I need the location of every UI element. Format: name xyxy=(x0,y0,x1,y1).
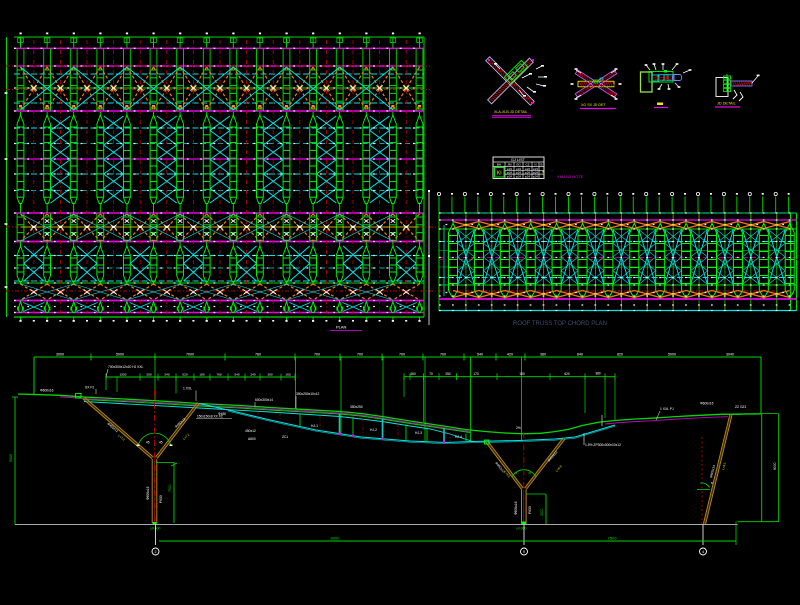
svg-text:600x300x14: 600x300x14 xyxy=(255,398,273,402)
svg-text:300: 300 xyxy=(267,373,272,377)
svg-text:φ24: φ24 xyxy=(533,175,538,179)
svg-text:9000: 9000 xyxy=(9,454,13,462)
svg-text:260: 260 xyxy=(410,372,416,376)
svg-text:2: 2 xyxy=(155,550,157,554)
svg-text:380: 380 xyxy=(595,372,601,376)
svg-text:XLA-XLB JD DETAIL: XLA-XLB JD DETAIL xyxy=(494,110,528,114)
svg-text:760: 760 xyxy=(255,353,261,357)
svg-text:540: 540 xyxy=(234,373,239,377)
svg-text:Φ600x16: Φ600x16 xyxy=(40,389,54,393)
svg-text:ZC1: ZC1 xyxy=(282,435,288,439)
svg-text:JD DETAIL: JD DETAIL xyxy=(717,102,736,106)
svg-text:3500: 3500 xyxy=(540,508,544,516)
svg-text:700: 700 xyxy=(399,353,405,357)
svg-text:760: 760 xyxy=(216,373,221,377)
svg-text:540: 540 xyxy=(477,353,483,357)
svg-text:YMJ BZ NOTE: YMJ BZ NOTE xyxy=(557,174,584,179)
svg-text:45: 45 xyxy=(146,441,150,445)
svg-text:45: 45 xyxy=(514,471,518,475)
svg-text:4: 4 xyxy=(702,550,704,554)
svg-text:45: 45 xyxy=(528,471,532,475)
svg-text:70: 70 xyxy=(429,372,433,376)
svg-text:HJ-3: HJ-3 xyxy=(415,431,422,435)
svg-text:±0.000: ±0.000 xyxy=(516,527,526,531)
svg-text:620: 620 xyxy=(182,373,187,377)
svg-text:φ24: φ24 xyxy=(516,175,521,179)
svg-text:1 XXL PJ: 1 XXL PJ xyxy=(660,407,674,411)
svg-text:700: 700 xyxy=(314,353,320,357)
svg-text:SX PJ: SX PJ xyxy=(85,386,95,390)
svg-text:420: 420 xyxy=(507,353,513,357)
svg-text:250: 250 xyxy=(445,372,451,376)
svg-text:3000: 3000 xyxy=(56,353,64,357)
svg-text:Φ600x16: Φ600x16 xyxy=(700,402,714,406)
svg-text:ZZ GZ1: ZZ GZ1 xyxy=(735,405,747,409)
svg-text:820: 820 xyxy=(617,353,623,357)
svg-text:350x250x10x12: 350x250x10x12 xyxy=(296,392,319,396)
svg-text:HJ-4: HJ-4 xyxy=(455,435,462,439)
svg-text:150: 150 xyxy=(519,372,525,376)
svg-text:φ24: φ24 xyxy=(507,175,512,179)
svg-text:640: 640 xyxy=(577,353,583,357)
svg-text:350x250: 350x250 xyxy=(350,405,363,409)
svg-text:1 XXL: 1 XXL xyxy=(183,387,192,391)
svg-text:7500: 7500 xyxy=(608,536,618,541)
svg-text:3040: 3040 xyxy=(726,353,734,357)
svg-text:180: 180 xyxy=(199,373,204,377)
svg-text:HJ-2: HJ-2 xyxy=(370,428,377,432)
svg-text:BH: BH xyxy=(497,163,501,167)
svg-text:1500: 1500 xyxy=(120,373,127,377)
svg-text:7500: 7500 xyxy=(168,484,172,492)
svg-text:8000: 8000 xyxy=(331,536,341,541)
svg-text:200: 200 xyxy=(146,373,151,377)
svg-text:2%: 2% xyxy=(516,426,521,430)
svg-text:620: 620 xyxy=(564,372,570,376)
svg-text:φ24: φ24 xyxy=(525,175,530,179)
svg-text:HJ-1: HJ-1 xyxy=(311,424,318,428)
svg-text:9: 9 xyxy=(523,550,525,554)
svg-text:GJ LIST: GJ LIST xyxy=(511,158,526,162)
svg-text:Φ600x16: Φ600x16 xyxy=(146,486,150,500)
svg-text:XG SX JD DET: XG SX JD DET xyxy=(581,103,606,107)
svg-text:170: 170 xyxy=(473,372,479,376)
svg-text:B: B xyxy=(540,163,542,167)
svg-text:45: 45 xyxy=(159,441,163,445)
svg-text:240: 240 xyxy=(250,373,255,377)
svg-text:Φ600x16: Φ600x16 xyxy=(514,501,518,515)
svg-text:A600: A600 xyxy=(248,437,256,441)
svg-text:1.5% ZP300x300x10x12: 1.5% ZP300x300x10x12 xyxy=(585,443,621,447)
svg-text:700: 700 xyxy=(440,353,446,357)
svg-text:7000: 7000 xyxy=(186,353,194,357)
svg-text:150x150x8 XX XC: 150x150x8 XX XC xyxy=(197,415,224,419)
svg-text:PLAN: PLAN xyxy=(336,325,347,330)
svg-text:ROOF TRUSS TOP CHORD PLAN: ROOF TRUSS TOP CHORD PLAN xyxy=(513,321,607,327)
svg-text:5000: 5000 xyxy=(116,353,124,357)
svg-text:160: 160 xyxy=(285,373,290,377)
svg-text:380: 380 xyxy=(540,353,546,357)
svg-text:P600: P600 xyxy=(159,495,163,503)
svg-text:700: 700 xyxy=(357,353,363,357)
svg-text:450x12: 450x12 xyxy=(245,429,256,433)
svg-text:9000: 9000 xyxy=(773,462,777,470)
svg-text:240: 240 xyxy=(164,373,169,377)
svg-text:P600: P600 xyxy=(528,506,532,514)
svg-text:5000: 5000 xyxy=(668,353,676,357)
svg-text:KI: KI xyxy=(497,171,502,177)
svg-text:700x300x12x20 HJ XXL: 700x300x12x20 HJ XXL xyxy=(108,365,144,369)
